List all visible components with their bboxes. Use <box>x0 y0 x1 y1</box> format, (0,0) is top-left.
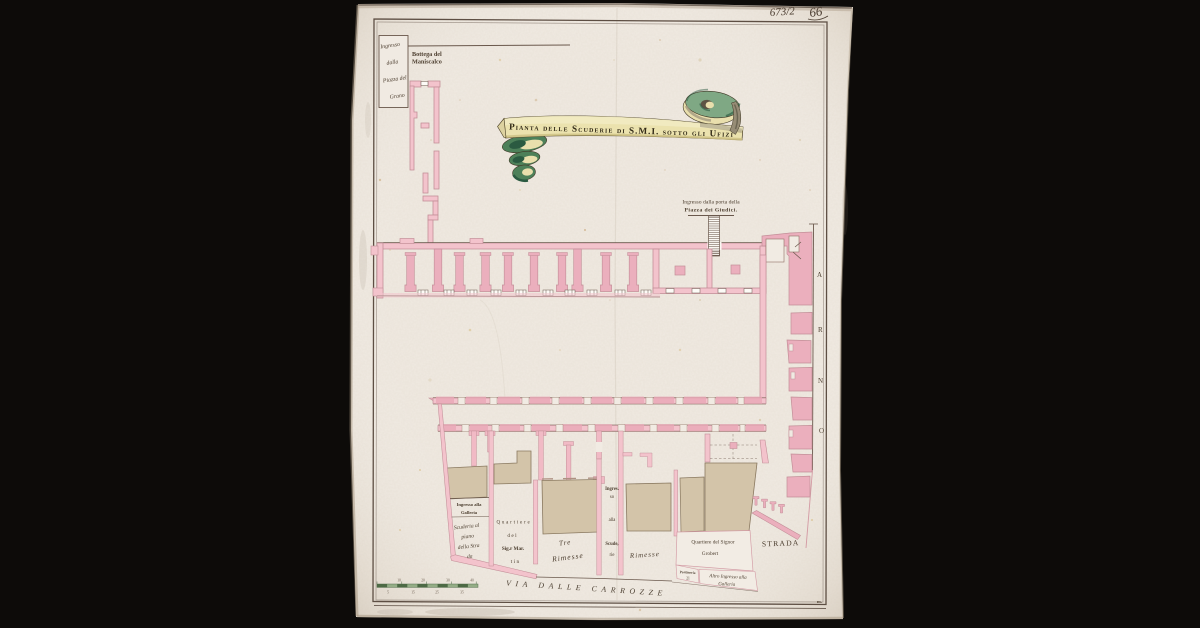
svg-text:Ingresso alla: Ingresso alla <box>457 502 483 507</box>
svg-text:30: 30 <box>446 579 450 583</box>
svg-text:Portineria: Portineria <box>680 570 696 575</box>
svg-text:40: 40 <box>470 579 474 583</box>
svg-text:A: A <box>817 271 822 279</box>
svg-text:d e l: d e l <box>507 533 517 539</box>
svg-text:15: 15 <box>411 591 415 595</box>
svg-text:alla: alla <box>609 518 617 523</box>
svg-text:rie: rie <box>610 553 615 558</box>
svg-text:35: 35 <box>460 591 464 595</box>
svg-text:25: 25 <box>435 591 439 595</box>
svg-text:Tre: Tre <box>559 538 572 547</box>
svg-text:Galleria: Galleria <box>718 582 736 588</box>
svg-text:673/2: 673/2 <box>769 5 795 19</box>
svg-text:O: O <box>819 427 824 435</box>
svg-text:Quartiere: Quartiere <box>496 521 531 526</box>
svg-text:Ingres.: Ingres. <box>605 487 619 492</box>
svg-text:t i n: t i n <box>511 559 520 565</box>
svg-text:21: 21 <box>686 577 690 581</box>
svg-text:Grobert: Grobert <box>702 551 719 557</box>
svg-text:Scude,: Scude, <box>605 542 618 547</box>
svg-text:66: 66 <box>808 3 823 20</box>
svg-text:Bottega del: Bottega del <box>412 51 442 58</box>
svg-text:20: 20 <box>421 579 425 583</box>
svg-text:Piazza dei Giudici.: Piazza dei Giudici. <box>685 208 738 214</box>
svg-text:m.: m. <box>817 599 822 604</box>
svg-text:10: 10 <box>397 579 401 583</box>
svg-text:Sig.r Mar.: Sig.r Mar. <box>502 546 525 552</box>
svg-text:N: N <box>818 377 823 385</box>
svg-text:5: 5 <box>387 591 389 595</box>
svg-text:Maniscalco: Maniscalco <box>412 59 442 66</box>
svg-text:Quartiere del Signor: Quartiere del Signor <box>691 540 734 546</box>
svg-text:Ingresso dalla porta della: Ingresso dalla porta della <box>682 200 740 206</box>
svg-text:R: R <box>818 326 823 334</box>
svg-text:so: so <box>610 495 615 500</box>
svg-text:da: da <box>467 554 473 561</box>
svg-text:Galleria: Galleria <box>461 510 478 515</box>
svg-text:STRADA: STRADA <box>762 538 800 548</box>
